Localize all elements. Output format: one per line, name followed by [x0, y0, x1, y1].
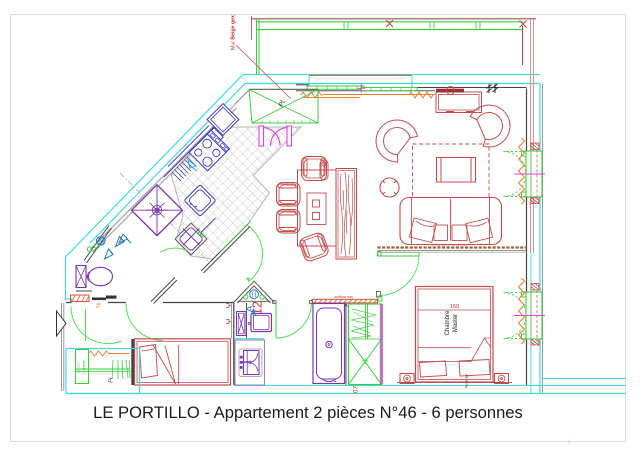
svg-text:Mur briques: Mur briques: [334, 295, 353, 299]
svg-text:Chauffage: Chauffage: [82, 360, 86, 373]
svg-text:Mur Beige gex: Mur Beige gex: [231, 15, 237, 50]
svg-text:Master: Master: [453, 314, 459, 332]
svg-text:Pl.: Pl.: [344, 301, 349, 306]
svg-text:T6: T6: [97, 302, 103, 308]
svg-text:07: 07: [353, 386, 360, 394]
svg-text:Pl.: Pl.: [109, 376, 115, 382]
svg-text:E.C | E.F +: E.C | E.F +: [77, 359, 81, 373]
svg-text:LE PORTILLO - Appartement 2 pi: LE PORTILLO - Appartement 2 pièces N°46 …: [93, 403, 523, 422]
svg-text:Mur beige: Mur beige: [465, 374, 469, 388]
svg-text:Chambre: Chambre: [445, 310, 451, 335]
svg-text:160: 160: [450, 304, 459, 310]
